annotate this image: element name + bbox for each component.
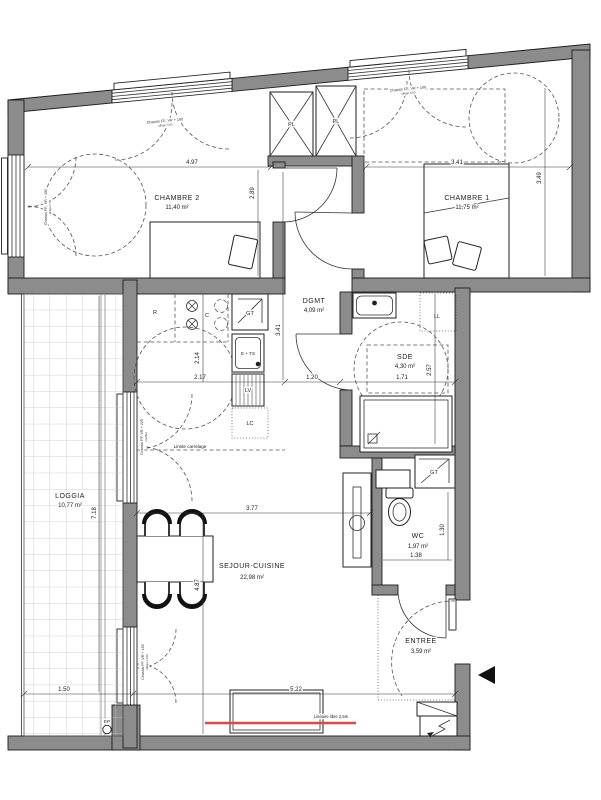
svg-text:Linéaire libre 2,5m: Linéaire libre 2,5m bbox=[314, 714, 349, 719]
hob-icon: C bbox=[187, 300, 228, 331]
placard-2: PL bbox=[316, 86, 356, 156]
floor-plan-page: EP PL PL bbox=[0, 0, 601, 800]
room-area-chambre1: 11,75 m² bbox=[455, 205, 478, 211]
duct-wc-label: GT bbox=[430, 470, 438, 476]
room-label-dgmt: DGMT bbox=[303, 298, 326, 305]
chair-icon bbox=[144, 511, 170, 536]
door-sde bbox=[296, 334, 352, 390]
svg-text:PL: PL bbox=[333, 119, 340, 125]
toilet-icon bbox=[386, 488, 413, 526]
svg-text:allège h:100: allège h:100 bbox=[145, 654, 149, 670]
floor-plan-drawing: EP PL PL bbox=[0, 0, 601, 800]
dim-wc-height: 1.30 bbox=[440, 524, 446, 536]
window-label-loggia-upper: Chassis PF, VR + 225 soufflet bbox=[140, 419, 148, 455]
svg-text:PL: PL bbox=[288, 122, 295, 128]
sde-fixtures: LL bbox=[353, 293, 456, 452]
dim-sde-width: 1.71 bbox=[396, 375, 408, 381]
loggia-tile-grid bbox=[22, 294, 124, 736]
room-label-chambre2: CHAMBRE 2 bbox=[154, 195, 199, 202]
door-wc bbox=[398, 590, 446, 638]
dim-wc-width: 1.38 bbox=[410, 553, 422, 559]
window-label-chambre2-top: Chassis FE, VR + 180 allège h:50 bbox=[147, 117, 184, 128]
window-chambre1-top bbox=[348, 49, 468, 80]
dishwasher-icon: LV bbox=[232, 374, 264, 406]
fridge-label: R bbox=[153, 310, 157, 316]
wc-fixtures: GT bbox=[376, 455, 455, 526]
sideboard bbox=[230, 690, 323, 733]
placard-1: PL bbox=[270, 92, 313, 156]
svg-text:allège h:50: allège h:50 bbox=[401, 90, 416, 95]
dim-sejour-bottom: 5.22 bbox=[290, 687, 302, 693]
door-chambre2 bbox=[285, 168, 337, 222]
entry-cabinet-icon bbox=[417, 702, 457, 737]
duct-kitchen-label: GT bbox=[246, 311, 254, 317]
room-area-loggia: 10,77 m² bbox=[58, 503, 82, 509]
room-label-sejour: SEJOUR-CUISINE bbox=[219, 563, 285, 570]
dim-chambre1-width: 3.41 bbox=[451, 160, 463, 166]
window-label-chambre1-top: Chassis FE, VR + 180 allège h:50 bbox=[390, 85, 427, 96]
room-area-sejour: 22,98 m² bbox=[240, 575, 264, 581]
room-area-dgmt: 4,09 m² bbox=[304, 308, 324, 314]
dim-kitchen-height: 2.14 bbox=[195, 352, 201, 364]
wc-shelf bbox=[376, 470, 410, 488]
washbasin-icon bbox=[353, 293, 396, 318]
dim-chambre2-width: 4.97 bbox=[186, 160, 198, 166]
window-label-loggia-lower: Chassis FF, VR + 150 allège h:100 bbox=[141, 644, 149, 680]
svg-text:soufflet: soufflet bbox=[144, 432, 148, 441]
window-label-chambre2-left: Chassis FE, VR + 180 allège h:50 bbox=[44, 189, 52, 225]
chair-icon bbox=[144, 582, 170, 607]
dim-loggia-width: 1.50 bbox=[58, 687, 70, 693]
room-label-loggia: LOGGIA bbox=[55, 493, 85, 500]
svg-text:EP: EP bbox=[104, 719, 110, 724]
dim-kitchen-width: 2.17 bbox=[194, 375, 206, 381]
bed-chambre2 bbox=[150, 222, 260, 278]
ep-downpipe-icon: EP bbox=[103, 719, 111, 734]
room-area-entree: 3,59 m² bbox=[411, 649, 431, 655]
bed-chambre1 bbox=[424, 164, 509, 278]
room-label-wc: WC bbox=[412, 533, 425, 540]
tile-limit: Limite carrelage bbox=[137, 444, 285, 450]
dim-sejour-height: 4.87 bbox=[195, 579, 201, 591]
duct-wc: GT bbox=[415, 455, 455, 488]
room-area-wc: 1,97 m² bbox=[408, 544, 428, 550]
room-label-entree: ENTREE bbox=[405, 638, 436, 645]
dim-loggia-height: 7.18 bbox=[92, 507, 98, 519]
room-area-chambre2: 11,40 m² bbox=[165, 205, 188, 211]
laundry-column-label: LC bbox=[246, 421, 253, 427]
sink-unit-icon: E + TS bbox=[232, 334, 264, 372]
chair-icon bbox=[179, 582, 205, 607]
dim-dgmt-height: 3.41 bbox=[276, 324, 282, 336]
kitchen-island-sink bbox=[343, 473, 371, 567]
entrance-arrow-icon bbox=[478, 666, 495, 684]
dim-sde-height: 2.57 bbox=[427, 364, 433, 376]
window-chambre2-left bbox=[2, 155, 25, 257]
laundry-column: LC bbox=[232, 408, 268, 438]
shower-icon bbox=[360, 396, 452, 452]
svg-text:allège h:50: allège h:50 bbox=[158, 122, 173, 127]
dishwasher-label: LV bbox=[245, 388, 252, 394]
dim-chambre1-height: 3.49 bbox=[537, 172, 543, 184]
washing-machine-icon: LL bbox=[420, 293, 456, 331]
svg-text:Limite carrelage: Limite carrelage bbox=[174, 444, 207, 449]
sink-unit-label: E + TS bbox=[241, 351, 255, 356]
entree-zone bbox=[378, 595, 495, 737]
dim-chambre2-height: 2.89 bbox=[250, 187, 256, 199]
duct-kitchen: GT bbox=[232, 294, 268, 330]
svg-text:allège h:50: allège h:50 bbox=[48, 200, 52, 215]
room-area-sde: 4,30 m² bbox=[395, 364, 415, 370]
dim-sejour-width: 3.77 bbox=[246, 506, 258, 512]
chair-icon bbox=[179, 511, 205, 536]
room-label-sde: SDE bbox=[397, 354, 413, 361]
kitchen-counter: R C GT E + TS bbox=[137, 294, 268, 438]
dim-dgmt-width: 1.20 bbox=[306, 375, 318, 381]
door-chambre1 bbox=[295, 212, 352, 269]
room-label-chambre1: CHAMBRE 1 bbox=[444, 195, 489, 202]
hob-label: C bbox=[205, 313, 209, 319]
dining-set bbox=[137, 511, 213, 607]
